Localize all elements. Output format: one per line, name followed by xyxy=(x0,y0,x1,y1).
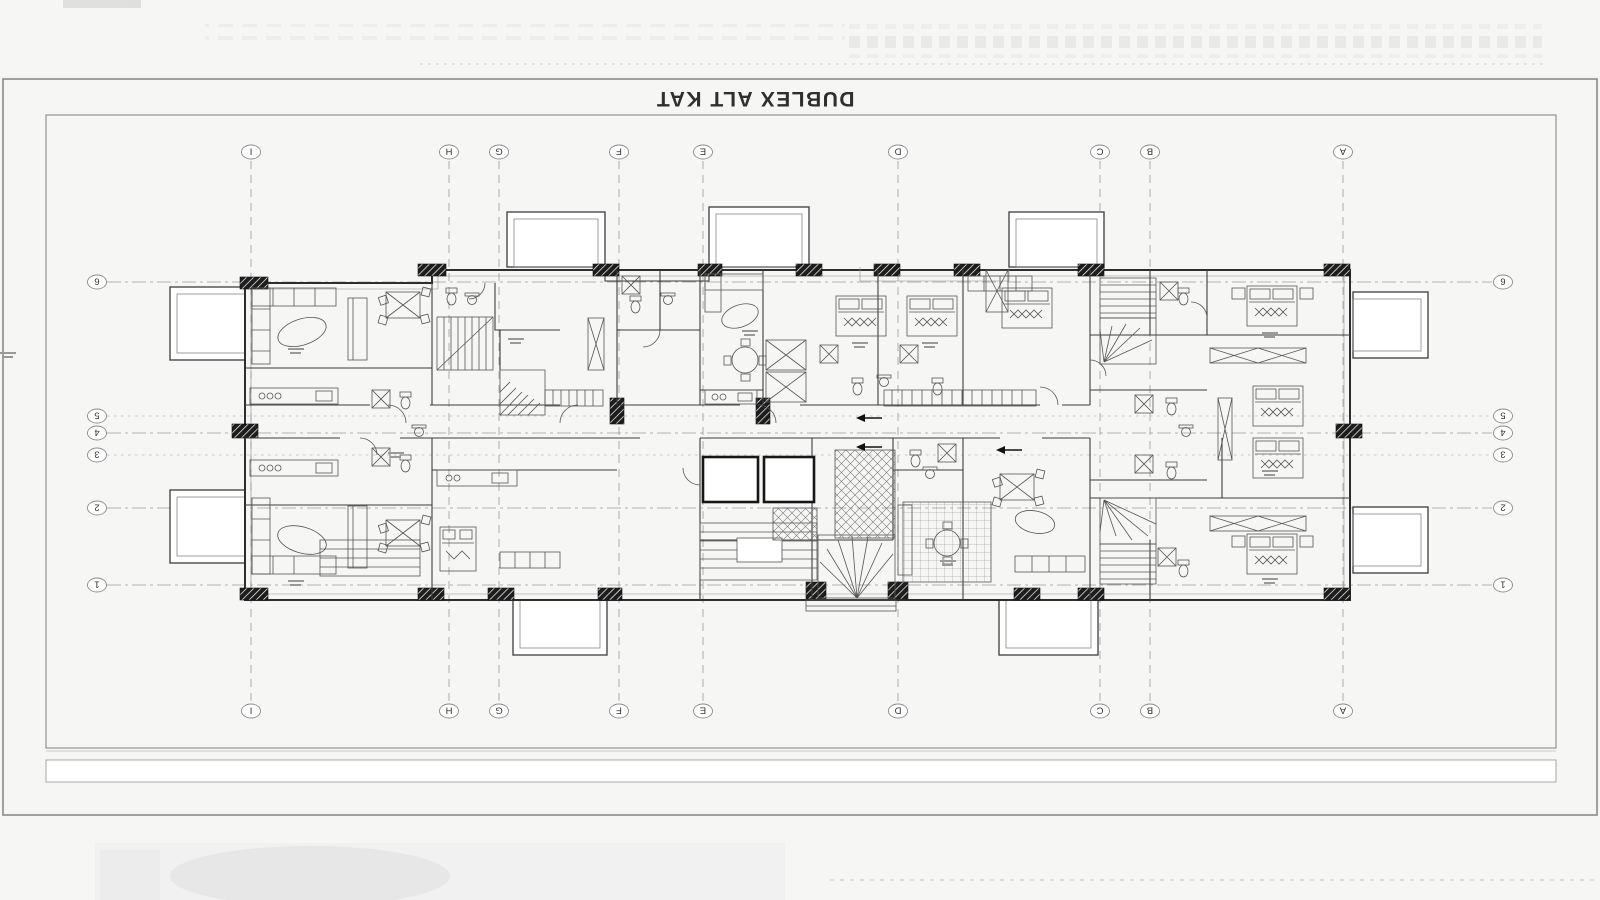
svg-text:H: H xyxy=(445,705,452,716)
svg-text:5: 5 xyxy=(1500,410,1505,421)
grid-bubble-top-G: G xyxy=(490,145,509,159)
svg-text:D: D xyxy=(894,146,901,157)
grid-bubble-right-5: 5 xyxy=(1494,409,1513,423)
svg-text:G: G xyxy=(495,146,502,157)
grid-bubble-top-H: H xyxy=(440,145,459,159)
svg-text:2: 2 xyxy=(94,502,99,513)
svg-text:G: G xyxy=(495,705,502,716)
building-plan xyxy=(0,207,1428,655)
adjacent-sheet-artifacts-top xyxy=(63,0,1545,64)
grid-bubble-bottom-E: E xyxy=(694,704,713,718)
grid-bubble-left-2: 2 xyxy=(88,501,107,515)
grid-bubble-top-I: I xyxy=(242,145,261,159)
grid-bubble-right-1: 1 xyxy=(1494,578,1513,592)
svg-text:E: E xyxy=(700,705,706,716)
svg-text:6: 6 xyxy=(1500,276,1505,287)
grid-bubble-left-4: 4 xyxy=(88,426,107,440)
svg-text:F: F xyxy=(616,705,622,716)
grid-bubble-bottom-H: H xyxy=(440,704,459,718)
svg-text:I: I xyxy=(250,146,253,157)
grid-bubble-right-4: 4 xyxy=(1494,426,1513,440)
svg-text:4: 4 xyxy=(1500,427,1505,438)
svg-text:F: F xyxy=(616,146,622,157)
grid-bubble-top-A: A xyxy=(1334,145,1353,159)
grid-bubble-top-E: E xyxy=(694,145,713,159)
grid-bubble-bottom-D: D xyxy=(889,704,908,718)
svg-text:C: C xyxy=(1096,146,1103,157)
svg-text:2: 2 xyxy=(1500,502,1505,513)
elevator-and-shafts xyxy=(588,270,1232,460)
paper-sheet xyxy=(3,79,1597,815)
svg-text:5: 5 xyxy=(94,410,99,421)
svg-text:B: B xyxy=(1147,146,1153,157)
grid-bubble-bottom-G: G xyxy=(490,704,509,718)
svg-text:1: 1 xyxy=(94,579,99,590)
grid-bubble-bottom-I: I xyxy=(242,704,261,718)
svg-text:A: A xyxy=(1339,146,1346,157)
grid-bubble-left-1: 1 xyxy=(88,578,107,592)
grid-bubble-right-6: 6 xyxy=(1494,275,1513,289)
svg-text:H: H xyxy=(445,146,452,157)
grid-bubble-left-3: 3 xyxy=(88,448,107,462)
interior-walls xyxy=(245,270,1350,600)
svg-text:A: A xyxy=(1339,705,1346,716)
floor-zones xyxy=(703,450,991,611)
grid-bubble-bottom-A: A xyxy=(1334,704,1353,718)
svg-text:E: E xyxy=(700,146,706,157)
grid-bubble-left-6: 6 xyxy=(88,275,107,289)
svg-text:1: 1 xyxy=(1500,579,1505,590)
grid-bubble-bottom-C: C xyxy=(1091,704,1110,718)
grid-bubble-top-D: D xyxy=(889,145,908,159)
svg-text:6: 6 xyxy=(94,276,99,287)
grid-bubble-top-F: F xyxy=(610,145,629,159)
grid-bubble-left-5: 5 xyxy=(88,409,107,423)
adjacent-sheet-artifacts-bottom xyxy=(95,843,1600,900)
grid-bubble-right-3: 3 xyxy=(1494,448,1513,462)
svg-text:I: I xyxy=(250,705,253,716)
svg-text:3: 3 xyxy=(1500,449,1505,460)
sheet-title: DUBLEX ALT KAT xyxy=(605,84,905,110)
grid-bubble-bottom-F: F xyxy=(610,704,629,718)
svg-text:C: C xyxy=(1096,705,1103,716)
grid-bubble-right-2: 2 xyxy=(1494,501,1513,515)
title-block-strip xyxy=(46,760,1556,782)
svg-text:4: 4 xyxy=(94,427,99,438)
grid-bubble-bottom-B: B xyxy=(1141,704,1160,718)
grid-bubble-top-C: C xyxy=(1091,145,1110,159)
drawing-sheet-viewport: IIHHGGFFEEDDCCBBAA665544332211 xyxy=(0,0,1600,900)
svg-text:3: 3 xyxy=(94,449,99,460)
svg-text:D: D xyxy=(894,705,901,716)
svg-text:B: B xyxy=(1147,705,1153,716)
floor-plan-canvas: IIHHGGFFEEDDCCBBAA665544332211 xyxy=(0,0,1600,900)
grid-bubble-top-B: B xyxy=(1141,145,1160,159)
